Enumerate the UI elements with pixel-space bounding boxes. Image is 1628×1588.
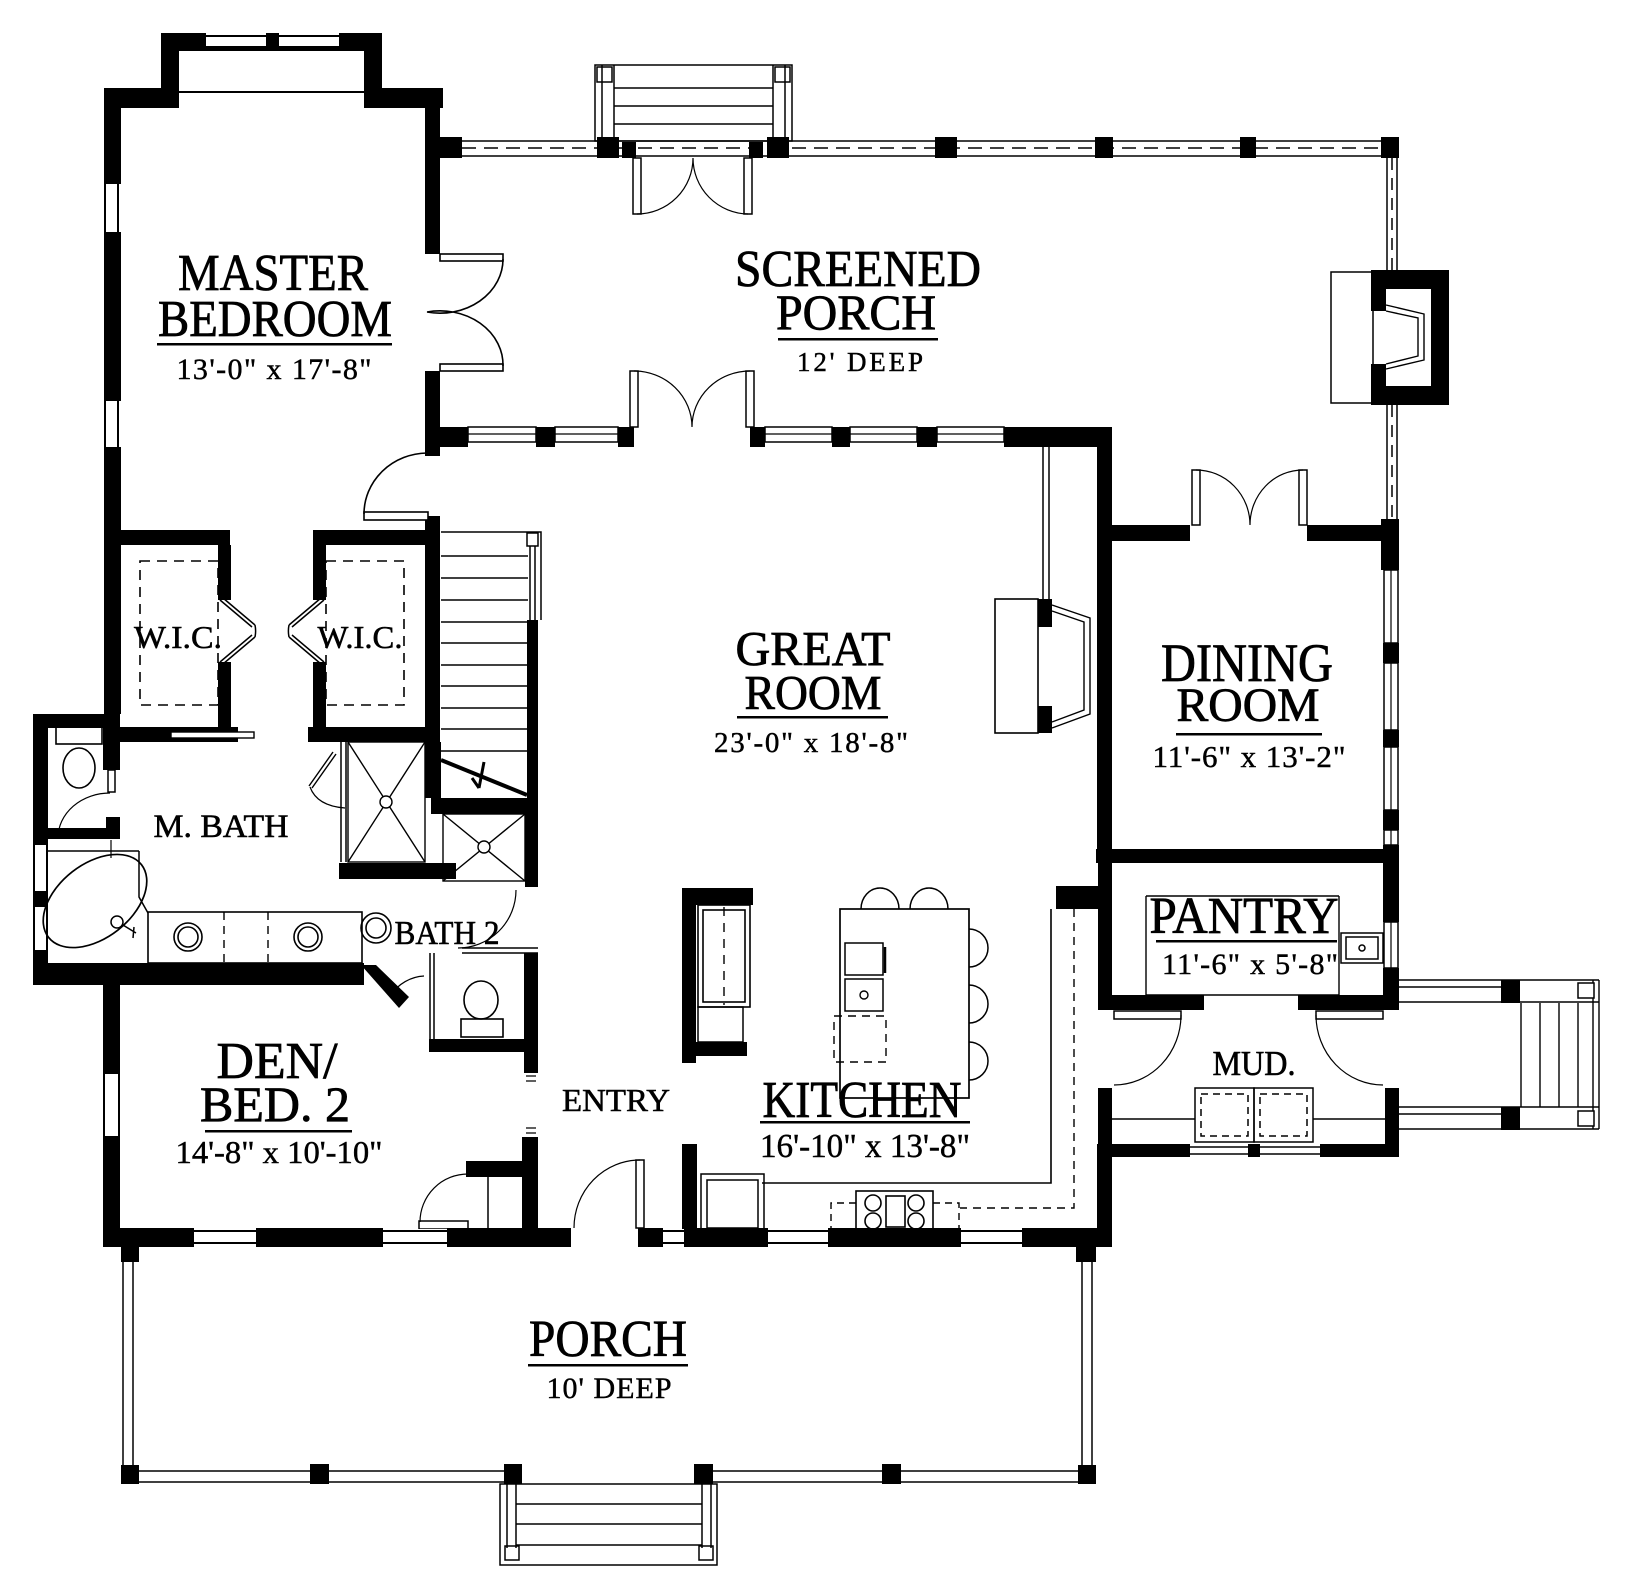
- svg-text:11'-6" x 5'-8": 11'-6" x 5'-8": [1162, 948, 1338, 981]
- svg-text:W.I.C.: W.I.C.: [318, 619, 403, 655]
- svg-text:PANTRY: PANTRY: [1150, 888, 1339, 945]
- svg-text:ENTRY: ENTRY: [562, 1082, 670, 1118]
- svg-text:M. BATH: M. BATH: [154, 809, 289, 845]
- svg-text:12' DEEP: 12' DEEP: [797, 347, 923, 377]
- svg-text:PORCH: PORCH: [529, 1311, 687, 1368]
- svg-text:11'-6" x 13'-2": 11'-6" x 13'-2": [1153, 739, 1346, 774]
- svg-text:MUD.: MUD.: [1213, 1044, 1296, 1083]
- svg-text:10' DEEP: 10' DEEP: [547, 1372, 672, 1405]
- svg-text:BEDROOM: BEDROOM: [158, 291, 392, 348]
- svg-text:16'-10" x 13'-8": 16'-10" x 13'-8": [760, 1128, 970, 1165]
- svg-text:W.I.C.: W.I.C.: [134, 619, 222, 655]
- svg-text:ROOM: ROOM: [745, 665, 882, 720]
- svg-text:13'-0" x 17'-8": 13'-0" x 17'-8": [177, 353, 372, 386]
- svg-text:PORCH: PORCH: [776, 284, 936, 340]
- svg-text:BATH 2: BATH 2: [395, 915, 500, 952]
- svg-text:BED. 2: BED. 2: [200, 1076, 350, 1132]
- svg-text:KITCHEN: KITCHEN: [763, 1072, 962, 1129]
- svg-text:14'-8" x 10'-10": 14'-8" x 10'-10": [176, 1134, 383, 1170]
- svg-text:ROOM: ROOM: [1177, 679, 1320, 732]
